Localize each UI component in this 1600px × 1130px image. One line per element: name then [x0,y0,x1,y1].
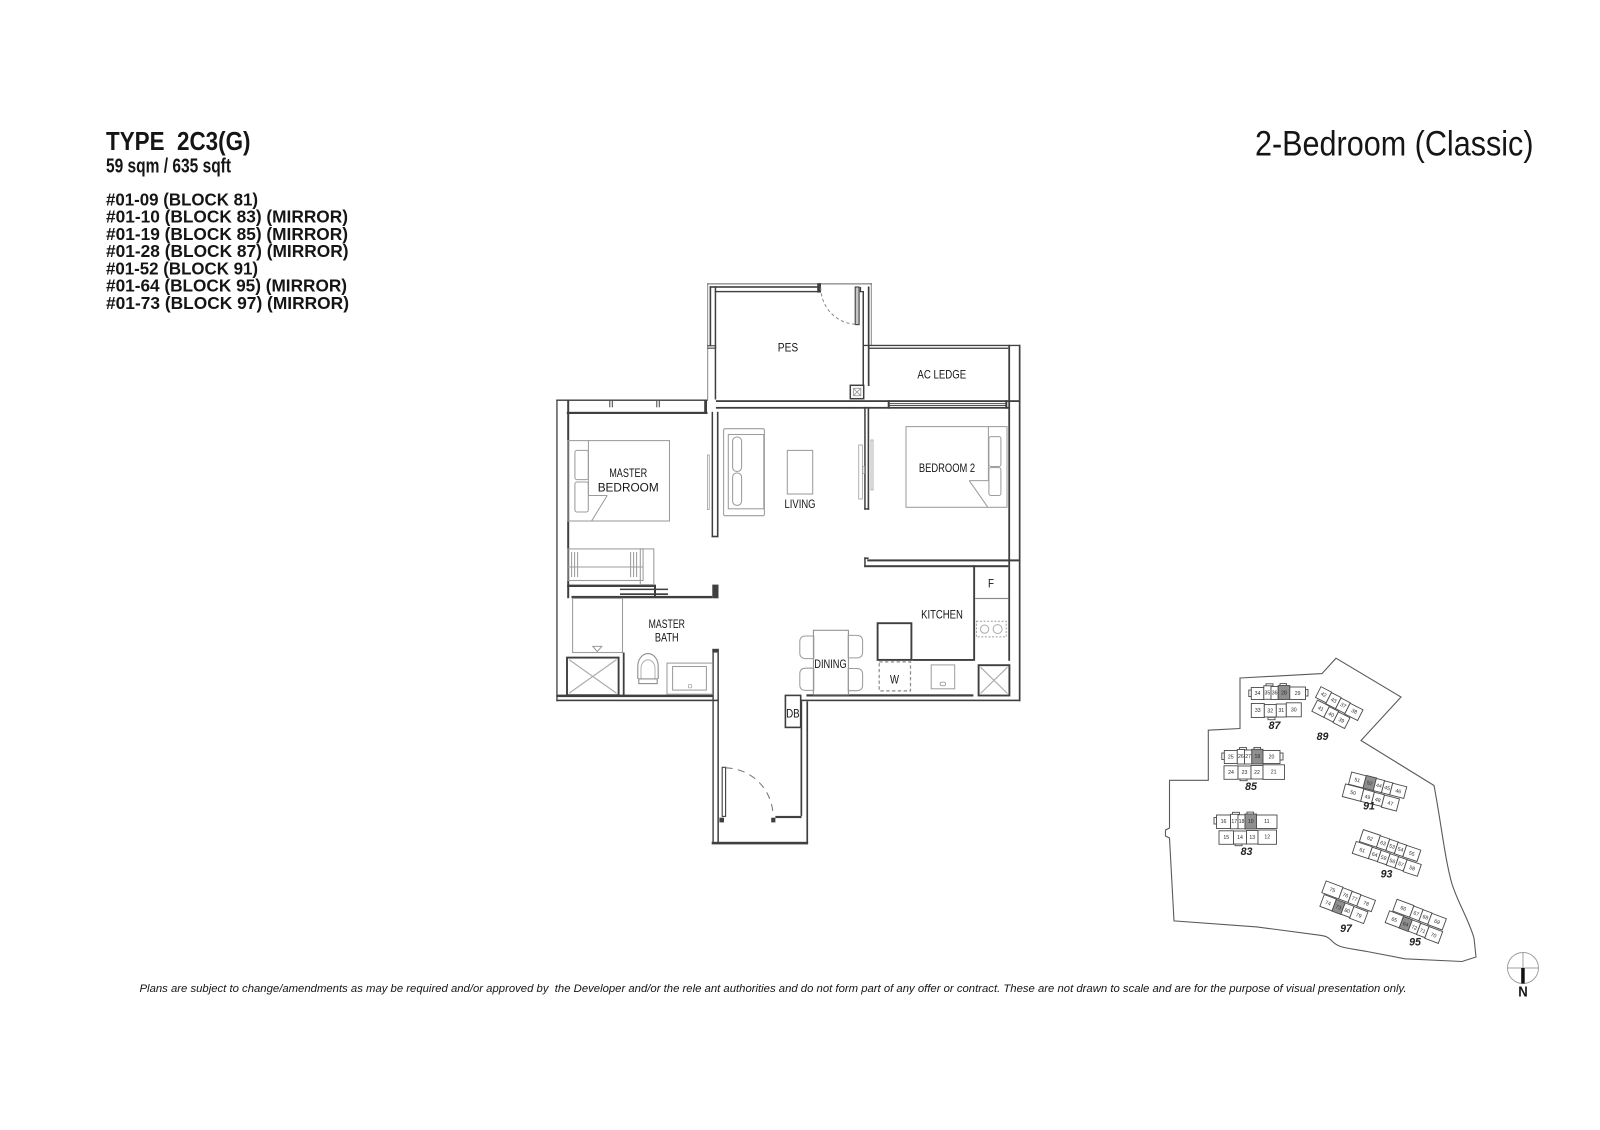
svg-text:25: 25 [1228,755,1234,761]
svg-text:17: 17 [1231,819,1237,825]
svg-text:MASTER: MASTER [649,617,685,631]
svg-text:2-Bedroom (Classic): 2-Bedroom (Classic) [1255,125,1534,164]
svg-text:N: N [1518,984,1528,1000]
svg-text:95: 95 [1409,937,1422,949]
svg-text:24: 24 [1228,770,1234,776]
svg-text:10: 10 [1248,819,1254,825]
svg-text:16: 16 [1221,819,1227,825]
svg-text:89: 89 [1317,731,1329,743]
svg-text:22: 22 [1254,770,1260,776]
svg-text:BATH: BATH [655,631,679,645]
svg-text:12: 12 [1264,835,1270,841]
svg-text:20: 20 [1269,755,1275,761]
svg-text:LIVING: LIVING [785,497,816,511]
svg-text:35: 35 [1265,691,1271,697]
svg-text:MASTER: MASTER [609,466,647,480]
svg-text:93: 93 [1381,869,1393,881]
svg-text:KITCHEN: KITCHEN [921,607,963,621]
svg-text:85: 85 [1245,781,1258,793]
svg-text:W: W [890,672,899,686]
svg-text:97: 97 [1340,923,1353,935]
svg-text:21: 21 [1271,770,1277,776]
svg-text:Plans are subject to change/am: Plans are subject to change/amendments a… [140,983,1407,995]
svg-text:87: 87 [1269,720,1282,732]
svg-text:83: 83 [1241,846,1253,858]
svg-text:DINING: DINING [814,657,846,671]
svg-text:33: 33 [1255,708,1261,714]
svg-text:#01-73 (BLOCK 97) (MIRROR): #01-73 (BLOCK 97) (MIRROR) [106,293,349,313]
svg-text:30: 30 [1291,708,1297,714]
svg-text:15: 15 [1223,835,1229,841]
svg-text:18: 18 [1239,819,1245,825]
svg-text:19: 19 [1255,754,1261,760]
svg-text:26: 26 [1238,754,1244,760]
svg-text:AC LEDGE: AC LEDGE [917,367,966,381]
svg-text:29: 29 [1295,691,1301,697]
svg-text:F: F [988,577,994,591]
svg-text:31: 31 [1278,708,1284,714]
svg-text:34: 34 [1255,691,1261,697]
svg-text:32: 32 [1267,709,1273,715]
svg-text:23: 23 [1242,770,1248,776]
svg-text:28: 28 [1281,691,1287,697]
svg-text:14: 14 [1237,835,1243,841]
svg-text:TYPE 2C3(G): TYPE 2C3(G) [106,128,251,156]
svg-text:11: 11 [1264,819,1269,825]
svg-text:91: 91 [1363,801,1375,813]
svg-text:13: 13 [1249,835,1255,841]
svg-text:BEDROOM: BEDROOM [598,480,659,494]
svg-text:BEDROOM 2: BEDROOM 2 [919,461,975,475]
svg-text:59 sqm / 635 sqft: 59 sqm / 635 sqft [106,154,231,177]
svg-text:36: 36 [1272,691,1278,697]
svg-text:PES: PES [778,340,798,354]
svg-text:27: 27 [1245,754,1251,760]
svg-text:DB: DB [786,706,800,720]
